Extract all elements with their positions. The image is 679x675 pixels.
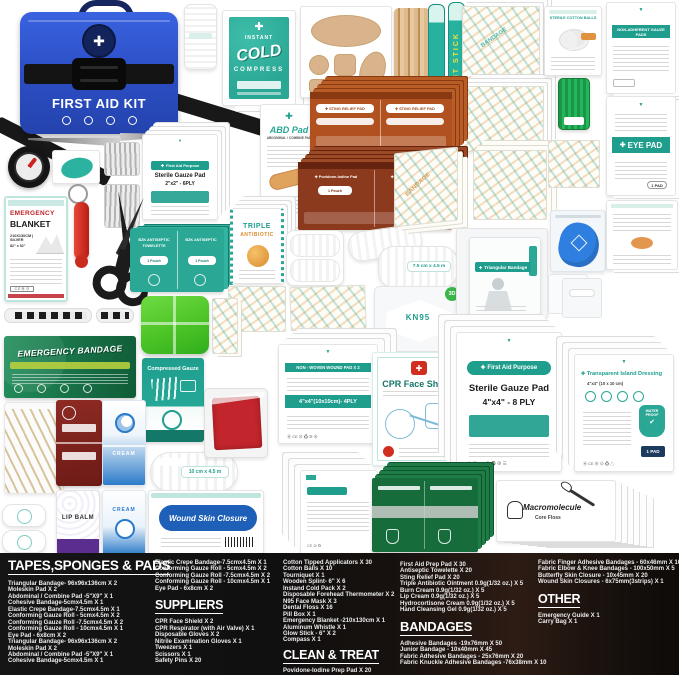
gauze-large-name: Sterile Gauze Pad: [457, 383, 561, 394]
adhesive-bandage-box: [548, 140, 600, 188]
prep-pad-packets: [606, 200, 678, 270]
check-icon: ✔: [639, 418, 665, 426]
adhesive-bandage-fan: [212, 298, 238, 354]
bag-label: FIRST AID KIT: [20, 96, 178, 111]
emergency-blanket: EMERGENCY BLANKET 210X130CM | SILVER 82"…: [4, 196, 68, 302]
kn95-label: KN95: [375, 313, 461, 322]
cotton-ball-wraps: [2, 504, 48, 554]
pill-box: [141, 296, 209, 354]
legend-list: Fabric Finger Adhesive Bandages - 60x46m…: [538, 560, 679, 586]
cross-icon: ✚: [581, 371, 585, 377]
non-adherent-pads-packet: ▼ NON-ADHERENT GAUZE PADS: [606, 2, 676, 94]
wound-skin-closure-box: Wound Skin Closure: [148, 490, 264, 554]
floss-name: Core Floss: [535, 515, 561, 521]
eye-pad-band: ✚ EYE PAD: [612, 137, 670, 153]
adhesive-bandage-box: [460, 86, 544, 152]
zip-bags: [548, 274, 604, 318]
badge-icon: [128, 116, 137, 125]
first-aid-kit-bag: ✚ FIRST AID KIT: [20, 0, 178, 134]
cross-icon: ✚: [93, 34, 105, 48]
legend-heading-bandages: BANDAGES: [400, 619, 472, 636]
legend-heading-tapes: TAPES,SPONGES & PADS: [8, 558, 170, 575]
compressed-gauze-title: Compressed Gauze: [142, 366, 204, 372]
red-cross-icon: ✚: [411, 361, 427, 375]
forehead-thermometer-strip: [96, 308, 134, 323]
roll-size-label: 7.5 cm x 4.5 m: [407, 261, 451, 272]
cross-icon: ✚: [620, 141, 626, 149]
non-adherent-band: NON-ADHERENT GAUZE PADS: [612, 25, 670, 38]
whistle-ring: [68, 184, 88, 204]
compass: [8, 146, 50, 188]
antiseptic-towelette-stack: BZK ANTISEPTIC TOWELETTE 1 Pouch BZK ANT…: [130, 228, 224, 292]
arrow-icon: ▼: [575, 359, 673, 365]
non-woven-wound-pad-stack: ▼ NON - WOVEN WOUND PAD X 2 4"x4"(10x10c…: [278, 344, 378, 444]
abd-sub: ABDOMINAL / COMBINE PAD: [261, 136, 317, 140]
cold-line3: COMPRESS: [229, 67, 289, 73]
legend-line: Disposable Forehead Thermometer X 2: [283, 592, 394, 598]
cotton-swabs: [4, 409, 64, 493]
cross-icon: ✚: [229, 20, 289, 33]
whistle: [74, 202, 89, 260]
burn-cream-packets: [56, 400, 102, 486]
cold-line2: COLD: [229, 41, 289, 67]
towelette-pouch: 1 Pouch: [140, 256, 168, 265]
arrow-icon: ▼: [607, 7, 675, 13]
island-dressing-packet: ▼ ✚ Transparent Island Dressing 4"x4" (1…: [574, 354, 674, 472]
gauze-large-brand: First Aid Purpose: [487, 365, 537, 371]
wound-pad-size: 4"x4"(10x10cm)- 4PLY: [299, 399, 357, 405]
dental-floss-picks-stack: Macromolecule Core Floss: [496, 480, 616, 542]
legend-line: Carry Bag X 1: [538, 619, 679, 625]
legend-col5: Fabric Finger Adhesive Bandages - 60x46m…: [538, 560, 679, 626]
non-adherent-title: NON-ADHERENT GAUZE PADS: [612, 27, 670, 37]
cross-icon: ✚: [479, 265, 482, 270]
blanket-line2: BLANKET: [6, 219, 66, 229]
povidone-prep-pad-stack-green: [372, 478, 478, 552]
cpr-illustration: [383, 401, 455, 447]
povidone-pouch: 1 Pouch: [318, 186, 352, 195]
kn95-mask: KN95 3D: [374, 286, 462, 352]
contents-panel: TAPES,SPONGES & PADS Triangular Bandage-…: [0, 553, 679, 675]
cream-label: CREAM: [103, 451, 145, 457]
bag-logo: ✚: [84, 26, 114, 56]
legend-col3: Cotton Tipped Applicators X 30Cotton Bal…: [283, 560, 394, 674]
waterproof-shield: WATER PROOF ✔: [639, 405, 665, 437]
cold-line1: INSTANT: [229, 35, 289, 41]
legend-list: First Aid Prep Pad X 30Antiseptic Towele…: [400, 562, 547, 614]
cpr-title: CPR Face Shield: [373, 379, 463, 389]
instant-cold-compress: ✚ INSTANT COLD COMPRESS: [222, 10, 296, 106]
cross-icon: ✚: [481, 365, 486, 371]
legend-list: Povidone-Iodine Prep Pad X 20: [283, 668, 394, 674]
legend-line: Emergency Blanket -210x130cm X 1: [283, 618, 394, 624]
legend-line: Fabric Knuckle Adhesive Bandages -76x38m…: [400, 660, 547, 666]
conforming-gauze-rolls: [286, 230, 344, 286]
legend-line: Conforming Gauze Roll - 5cmx4.5m X 2: [155, 566, 270, 572]
badge-icon: [62, 116, 71, 125]
cross-icon: ✚: [161, 163, 164, 168]
eye-pad-packet: ▼ ✚ EYE PAD 1 PAD: [606, 96, 676, 196]
triple-line1: TRIPLE: [233, 223, 281, 230]
adhesive-bandage-box: [289, 285, 366, 332]
legend-heading-clean-treat: CLEAN & TREAT: [283, 648, 379, 664]
gauze-name: Sterile Gauze Pad: [143, 173, 217, 179]
lip-balm-packet: LIP BALM: [56, 490, 100, 556]
tourniquet-band-wrapped: [204, 388, 268, 458]
cross-icon: ✚: [315, 175, 318, 179]
legend-line: Safety Pins X 20: [155, 658, 270, 664]
legend-list: Elastic Crepe Bandage-7.5cmx4.5m X 1Conf…: [155, 560, 270, 592]
bandage-word: BANDAGE: [480, 27, 508, 49]
legend-line: Wound Skin Closures - 6x75mm(3strips) X …: [538, 579, 679, 585]
cream-label: CREAM: [103, 507, 145, 513]
cross-icon: ✚: [325, 107, 328, 111]
arrow-icon: ▼: [143, 138, 217, 143]
legend-line: Conforming Gauze Roll - 10cmx4.5m X 1: [155, 579, 270, 585]
cotton-balls-title: STERILE COTTON BALLS: [545, 16, 601, 20]
cross-icon: ✚: [395, 107, 398, 111]
cohesive-bandage-roll: 10 cm x 4.5 m: [150, 452, 238, 492]
wound-pad-title: NON - WOVEN WOUND PAD X 2: [296, 365, 359, 370]
cpr-face-shield-packet: ✚ CPR Face Shield: [372, 352, 464, 466]
triangular-bandage-packets: ✚ Triangular Bandage: [456, 228, 548, 318]
gauze-brand: First Aid Purpose: [166, 163, 199, 168]
swabs-pouch: [4, 402, 64, 494]
island-title: Transparent Island Dressing: [587, 371, 662, 377]
nitrile-gloves-bag: [550, 210, 606, 272]
island-pad-count: 1 PAD: [646, 449, 659, 454]
arrow-icon: ▼: [457, 338, 561, 344]
hydrocortisone-cream-packet: CREAM: [102, 490, 146, 556]
legend-heading-suppliers: SUPPLIERS: [155, 598, 223, 614]
conforming-gauze-roll-75: 7.5 cm x 4.5 m: [378, 246, 458, 288]
safety-pins: [104, 142, 140, 176]
triple-line2: ANTIBIOTIC: [233, 232, 281, 238]
cleansing-gel-packets: CREAM: [102, 400, 146, 486]
legend-list: Adhesive Bandages -19x76mm X 50Junior Ba…: [400, 641, 547, 667]
bag-buckle: [72, 58, 126, 90]
blanket-size2: 82" x 52": [10, 244, 25, 248]
gauze-size: 2"x2" - 6PLY: [143, 181, 217, 187]
sting-title: STING RELIEF PAD: [399, 106, 435, 111]
blanket-line1: EMERGENCY: [6, 210, 66, 217]
light-stick-label: LIGHT STICK: [453, 32, 460, 98]
towelette-line1: BZK ANTISEPTIC: [133, 238, 175, 242]
arrow-icon: ▼: [279, 349, 377, 355]
triangular-title: Triangular Bandage: [484, 265, 527, 270]
sting-relief-pad-stack: ✚ STING RELIEF PAD ✚ STING RELIEF PAD: [310, 92, 452, 156]
cross-icon: ✚: [261, 111, 317, 122]
legend-list: CPR Face Shield X 2CPR Respirator (with …: [155, 619, 270, 664]
abd-title: ABD Pad: [261, 125, 317, 135]
adhesive-bandage-box: BANDAGE: [462, 6, 540, 80]
product-image: ✚ FIRST AID KIT ✚ INSTANT COLD COMPRESS: [0, 0, 679, 675]
legend-col1: TAPES,SPONGES & PADS Triangular Bandage-…: [8, 557, 170, 665]
compressed-gauze-packet: Compressed Gauze: [142, 358, 204, 442]
dental-floss: [558, 78, 590, 130]
roll10-label: 10 cm x 4.5 m: [181, 466, 229, 478]
cotton-balls-packet: STERILE COTTON BALLS: [544, 6, 602, 76]
blanket-size: 210X130CM | SILVER: [10, 234, 36, 242]
legend-heading-other: OTHER: [538, 592, 580, 608]
legend-line: Povidone-Iodine Prep Pad X 20: [283, 668, 394, 674]
arrow-icon: ▼: [607, 102, 675, 108]
triple-antibiotic-packet: TRIPLE ANTIBIOTIC: [230, 208, 284, 284]
gauze-large-size: 4"x4" - 8 PLY: [457, 397, 561, 407]
moleskin-pad-sheet: [300, 6, 392, 98]
pads-fan-stack: CE ⊘ ♻: [300, 470, 378, 554]
badge-icon: [84, 116, 93, 125]
lip-balm-label: LIP BALM: [57, 515, 99, 521]
island-size: 4"x4" (10 x 10 cm): [587, 381, 623, 386]
legend-list: Cotton Tipped Applicators X 30Cotton Bal…: [283, 560, 394, 644]
israeli-emergency-bandage: EMERGENCY BANDAGE: [4, 336, 136, 398]
closure-title: Wound Skin Closure: [169, 514, 247, 523]
warning-dot: [383, 446, 394, 457]
floss-brand: Macromolecule: [523, 503, 581, 512]
legend-col4: First Aid Prep Pad X 30Antiseptic Towele…: [400, 562, 547, 666]
legend-line: Cohesive Bandage-5cmx4.5m X 1: [8, 658, 170, 664]
sting-title: STING RELIEF PAD: [329, 106, 365, 111]
povidone-title: Povidone-Iodine Pad: [319, 174, 357, 179]
bag-body: ✚ FIRST AID KIT: [20, 12, 178, 134]
legend-list: Triangular Bandage- 96x96x136cm X 2Moles…: [8, 581, 170, 665]
towelette-line2: TOWELETTE: [133, 244, 175, 248]
adhesive-bandage-fan: BANDAGE: [394, 147, 458, 228]
legend-list: Emergency Guide X 1Carry Bag X 1: [538, 613, 679, 626]
legend-col2: Elastic Crepe Bandage-7.5cmx4.5m X 1Conf…: [155, 560, 270, 664]
gauze-roll-wrapped: [184, 4, 217, 70]
sterile-gauze-pad-large-stack: ▼ ✚ First Aid Purpose Sterile Gauze Pad …: [456, 332, 562, 472]
adhesive-bandage-box: [473, 150, 547, 220]
legend-line: Fabric Elbow & Knee Bandages - 100x50mm …: [538, 566, 679, 572]
forehead-thermometer-strip: [4, 308, 92, 323]
tooth-icon: [507, 501, 523, 519]
badge-icon: [106, 116, 115, 125]
eye-pad-title: EYE PAD: [628, 141, 663, 150]
bag-icon-row: [20, 116, 178, 125]
bandage-word: BANDAGE: [405, 172, 432, 198]
tourniquet-packet: [52, 150, 100, 184]
figure-illustration: [492, 278, 504, 290]
